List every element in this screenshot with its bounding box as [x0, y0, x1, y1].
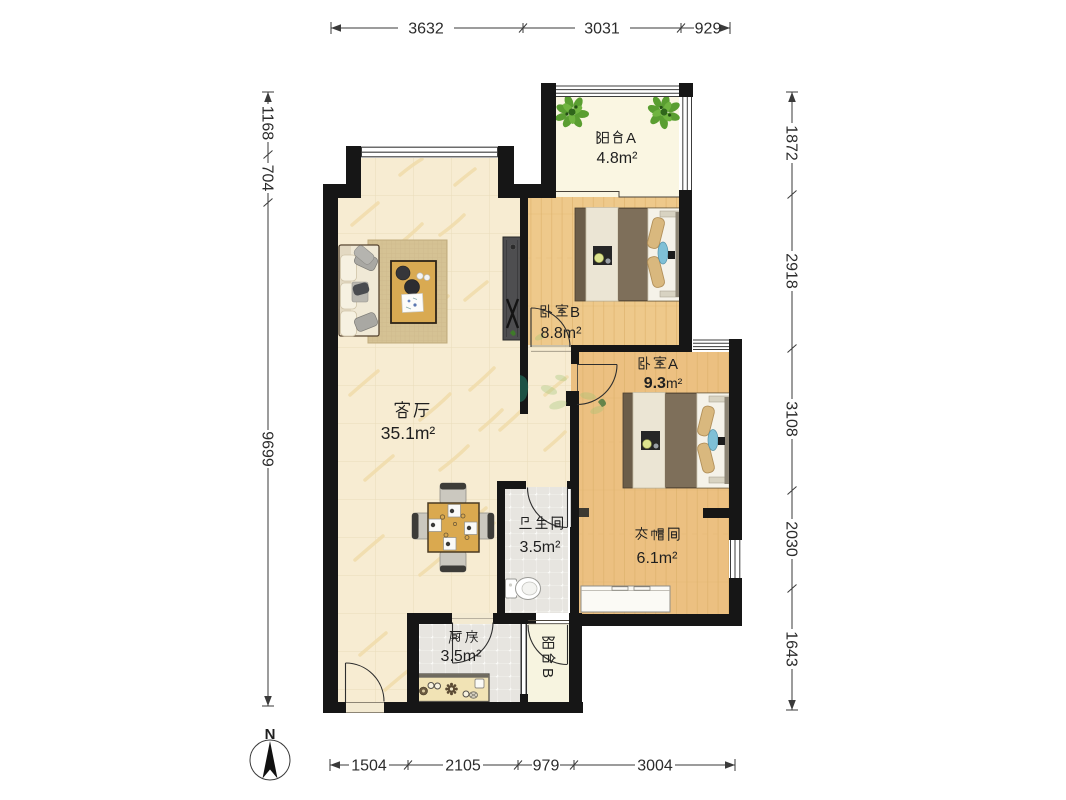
svg-text:A: A — [626, 130, 636, 147]
svg-text:3004: 3004 — [637, 758, 673, 775]
svg-text:B: B — [570, 304, 580, 321]
svg-text:1504: 1504 — [351, 758, 387, 775]
svg-text:1168: 1168 — [259, 106, 276, 141]
svg-text:2030: 2030 — [783, 521, 800, 557]
svg-text:35.1m²: 35.1m² — [381, 423, 436, 443]
svg-text:A: A — [668, 356, 678, 373]
svg-text:9699: 9699 — [259, 431, 276, 467]
svg-text:1872: 1872 — [783, 125, 800, 161]
svg-text:6.1m²: 6.1m² — [637, 550, 679, 567]
svg-text:3632: 3632 — [408, 21, 444, 38]
svg-text:9.3m²: 9.3m² — [644, 375, 683, 392]
svg-text:2105: 2105 — [445, 758, 481, 775]
svg-text:N: N — [265, 726, 276, 743]
svg-text:3108: 3108 — [783, 401, 800, 437]
svg-text:979: 979 — [533, 758, 560, 775]
svg-text:929: 929 — [695, 21, 722, 38]
svg-text:3.5m²: 3.5m² — [441, 648, 483, 665]
svg-text:3.5m²: 3.5m² — [520, 539, 562, 556]
svg-text:2918: 2918 — [783, 253, 800, 289]
svg-text:B: B — [539, 668, 556, 678]
svg-text:1643: 1643 — [783, 631, 800, 667]
svg-text:704: 704 — [259, 165, 276, 192]
svg-text:3031: 3031 — [584, 21, 620, 38]
svg-text:8.8m²: 8.8m² — [541, 325, 583, 342]
svg-text:4.8m²: 4.8m² — [597, 150, 639, 167]
